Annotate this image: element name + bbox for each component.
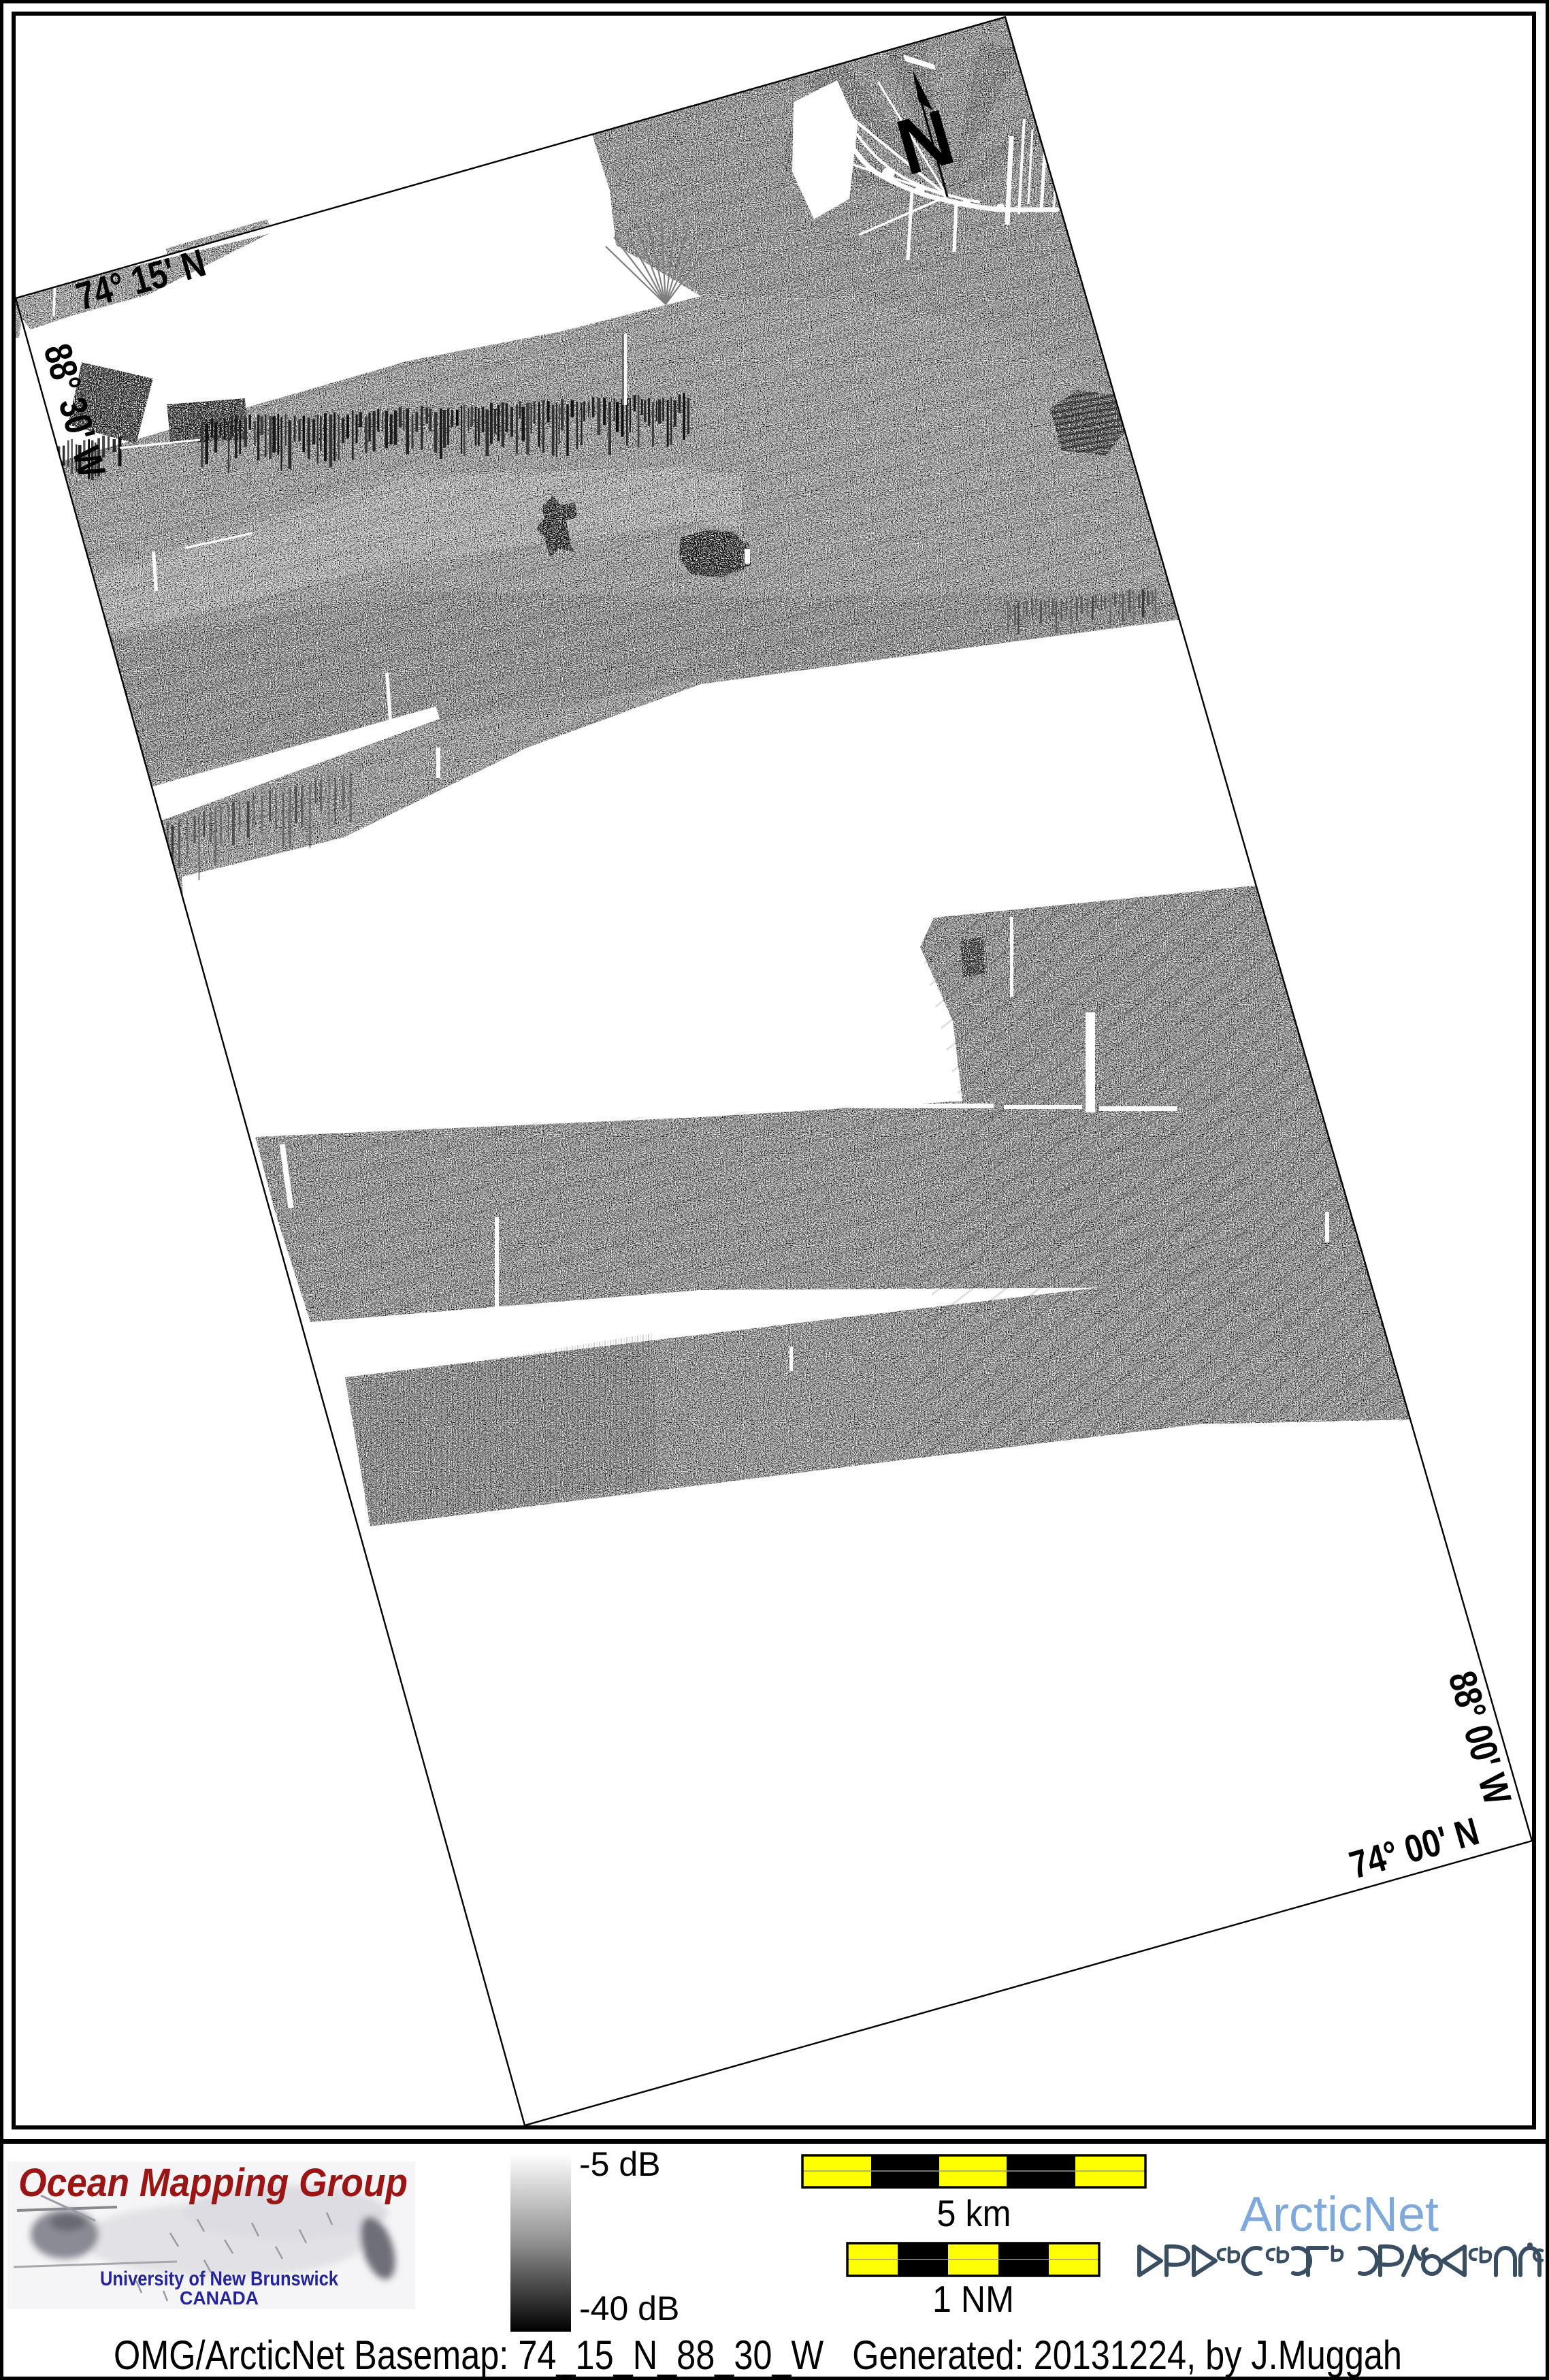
svg-text:CANADA: CANADA [180,2287,259,2309]
svg-text:5 km: 5 km [937,2192,1011,2234]
svg-text:-40 dB: -40 dB [579,2289,679,2328]
svg-text:1 NM: 1 NM [932,2278,1014,2320]
svg-text:-5 dB: -5 dB [579,2145,661,2183]
svg-text:ArcticNet: ArcticNet [1240,2187,1439,2242]
svg-text:OMG/ArcticNet Basemap: 74_15_N: OMG/ArcticNet Basemap: 74_15_N_88_30_W G… [114,2332,1402,2378]
svg-text:Ocean Mapping Group: Ocean Mapping Group [18,2161,408,2205]
